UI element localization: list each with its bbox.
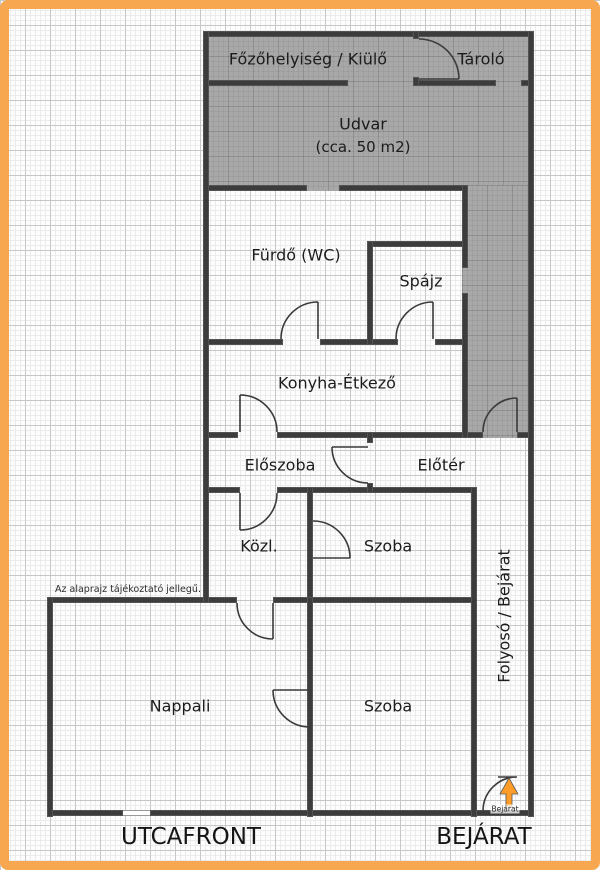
room-label-folyoso: Folyosó / Bejárat [495, 549, 514, 683]
footer-label-bejarat: BEJÁRAT [436, 824, 531, 850]
door-arc [483, 398, 517, 432]
door-arc [419, 39, 459, 79]
door-arcs-overlay [0, 0, 600, 870]
room-label-spajz: Spájz [400, 272, 443, 291]
room-label-kozlekedo: Közl. [240, 537, 277, 556]
door-arc [313, 521, 350, 558]
room-label-szoba-felso: Szoba [364, 537, 412, 556]
room-label-fozohelyiseg: Főzőhelyiség / Kiülő [229, 50, 387, 69]
floor-plan: Főzőhelyiség / Kiülő Tároló Udvar (cca. … [0, 0, 600, 870]
door-arc [332, 447, 368, 483]
footer-label-utcafront: UTCAFRONT [121, 824, 261, 850]
room-label-eloter: Előtér [417, 456, 464, 475]
door-arc [273, 690, 310, 727]
door-arc [240, 395, 277, 432]
room-label-udvar-area: (cca. 50 m2) [316, 138, 411, 156]
room-label-konyha: Konyha-Étkező [278, 374, 396, 393]
disclaimer-note: Az alaprajz tájékoztató jellegű. [55, 584, 201, 595]
door-arc [396, 302, 433, 339]
entrance-label: Bejárat [490, 805, 519, 814]
room-label-nappali: Nappali [150, 697, 211, 716]
door-arc [281, 302, 318, 339]
door-arc [237, 603, 273, 639]
room-label-eloszoba: Előszoba [245, 456, 316, 475]
room-label-furdo: Fürdő (WC) [251, 246, 340, 265]
room-label-tarolo: Tároló [457, 50, 504, 69]
room-label-udvar: Udvar [339, 115, 387, 134]
room-label-szoba-also: Szoba [364, 697, 412, 716]
door-arc [240, 493, 277, 530]
entrance-arrow-icon [500, 778, 518, 807]
